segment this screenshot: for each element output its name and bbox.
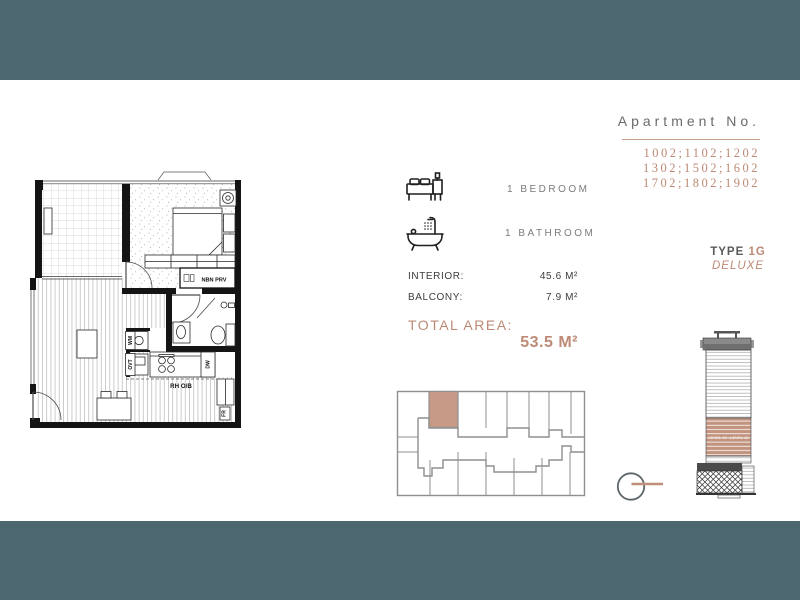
bed [173, 208, 222, 255]
nbn-label: NBN PRV [201, 278, 226, 284]
bed-icon [404, 170, 446, 206]
floorplan-brochure-page: NBN PRV RH O/B WM OVT DW FR 1 BEDROOM [0, 0, 800, 600]
awning-bay [158, 172, 211, 180]
heading-underline [622, 139, 760, 140]
washer-label: WM [128, 336, 134, 345]
balcony-value: 7.9 M² [546, 292, 578, 303]
top-banner [0, 0, 800, 80]
balcony-bench [44, 208, 52, 234]
type-value: 1G [748, 246, 765, 258]
apartment-numbers-line: 1702;1802;1902 [540, 176, 760, 191]
tower-floors [706, 350, 751, 418]
type-variant: DELUXE [688, 260, 788, 272]
toilet-bowl [211, 326, 225, 344]
dishwasher-label: DW [206, 360, 212, 369]
type-block: TYPE 1G DELUXE [688, 246, 788, 272]
bathroom-count-label: 1 BATHROOM [505, 228, 595, 239]
fridge-label: FR [222, 410, 228, 417]
rangehood-label: RH O/B [170, 383, 192, 390]
apartment-numbers-line: 1302;1502;1602 [540, 161, 760, 176]
type-label: TYPE [710, 246, 744, 258]
dining-table [97, 398, 131, 420]
building-elevation: LEVEL 10 - LEVEL 19 [694, 328, 758, 500]
balcony-area-row: BALCONY: 7.9 M² [408, 292, 578, 303]
interior-label: INTERIOR: [408, 271, 464, 282]
apartment-no-heading: Apartment No. [540, 113, 760, 129]
podium-balustrade [697, 463, 742, 471]
interior-value: 45.6 M² [540, 271, 578, 282]
north-arrow [615, 470, 667, 504]
coffee-table [77, 330, 97, 358]
apartment-number-block: Apartment No. 1002;1102;1202 1302;1502;1… [540, 113, 760, 191]
bottom-banner [0, 521, 800, 600]
podium-lattice [697, 471, 742, 493]
balcony-tiled-floor [42, 184, 122, 278]
floor-plan: NBN PRV RH O/B WM OVT DW FR [21, 168, 251, 438]
bathtub-icon [404, 213, 446, 253]
floor-key-plan [396, 390, 586, 497]
levels-band-label: LEVEL 10 - LEVEL 19 [709, 435, 750, 440]
total-area-label: TOTAL AREA: [408, 317, 513, 333]
highlighted-unit [429, 392, 458, 428]
balcony-label: BALCONY: [408, 292, 463, 303]
cooktop [159, 357, 166, 364]
total-area-value: 53.5 M² [408, 334, 578, 352]
apartment-numbers: 1002;1102;1202 1302;1502;1602 1702;1802;… [540, 146, 760, 191]
compass-circle [618, 473, 644, 499]
door-closer [221, 302, 227, 308]
interior-area-row: INTERIOR: 45.6 M² [408, 271, 578, 282]
toilet-cistern [226, 324, 235, 346]
apartment-numbers-line: 1002;1102;1202 [540, 146, 760, 161]
roof-rail [714, 331, 740, 334]
oven-label: OVT [128, 359, 134, 369]
